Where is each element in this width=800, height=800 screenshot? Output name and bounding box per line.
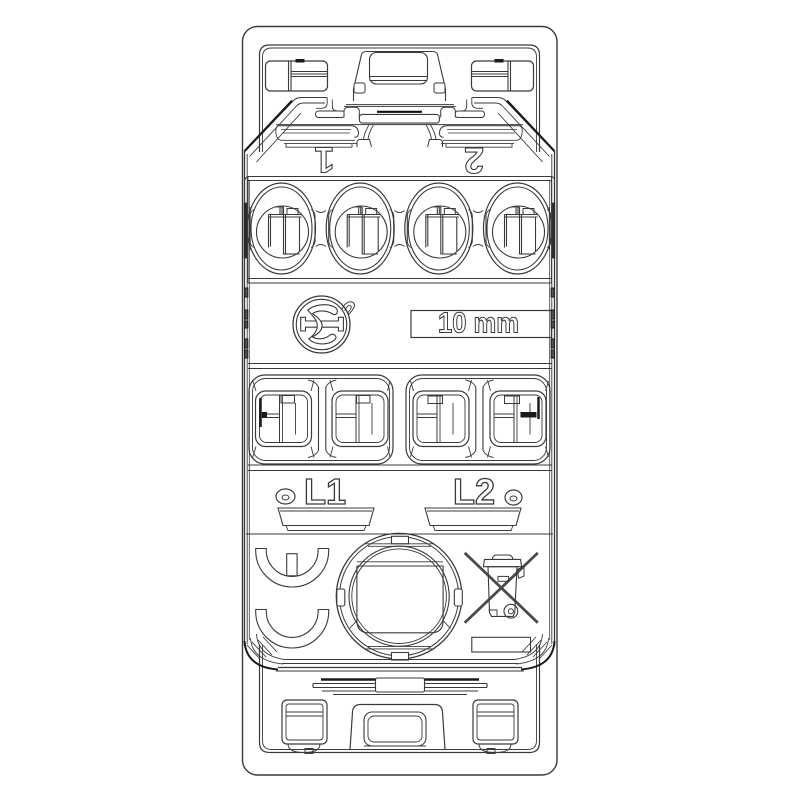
svg-text:1: 1 (314, 140, 334, 181)
svg-text:10 mm: 10 mm (438, 308, 519, 340)
svg-text:L2: L2 (453, 471, 495, 512)
svg-text:L1: L1 (304, 471, 346, 512)
svg-text:2: 2 (464, 140, 484, 181)
